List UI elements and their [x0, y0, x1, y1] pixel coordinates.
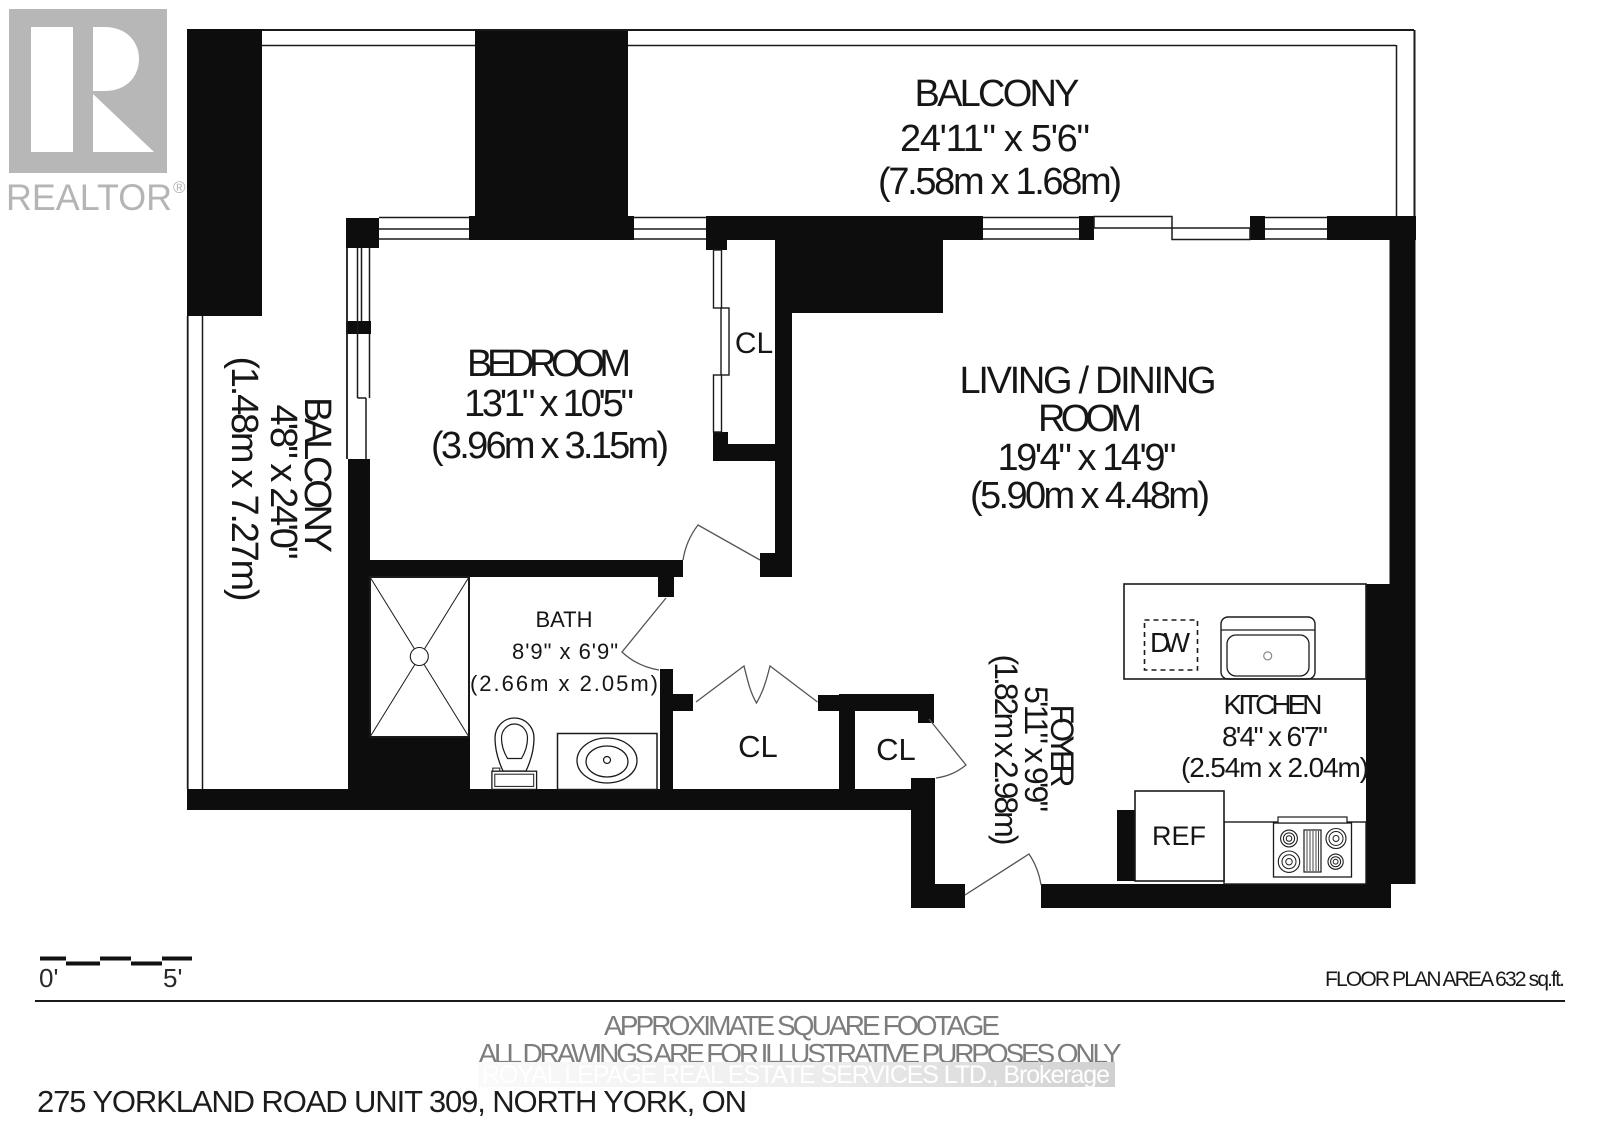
svg-text:BEDROOM: BEDROOM — [467, 343, 631, 385]
svg-text:(3.96m x 3.15m): (3.96m x 3.15m) — [431, 425, 669, 467]
svg-text:CL: CL — [738, 729, 778, 764]
svg-text:FLOOR PLAN AREA 632 sq.ft.: FLOOR PLAN AREA 632 sq.ft. — [1325, 968, 1565, 991]
svg-text:CL: CL — [735, 327, 773, 360]
svg-text:BALCONY: BALCONY — [915, 73, 1080, 115]
svg-text:0': 0' — [39, 963, 58, 993]
svg-text:LIVING / DINING: LIVING / DINING — [960, 360, 1217, 402]
svg-text:275 YORKLAND ROAD UNIT 309, NO: 275 YORKLAND ROAD UNIT 309, NORTH YORK, … — [37, 1084, 747, 1119]
svg-text:®: ® — [173, 178, 186, 197]
svg-text:APPROXIMATE SQUARE FOOTAGE: APPROXIMATE SQUARE FOOTAGE — [604, 1010, 1000, 1041]
svg-text:(2.66m x 2.05m): (2.66m x 2.05m) — [470, 671, 658, 696]
svg-text:4'8" x 24'0": 4'8" x 24'0" — [262, 405, 304, 560]
svg-text:5': 5' — [163, 963, 182, 993]
svg-text:(1.48m x 7.27m): (1.48m x 7.27m) — [223, 357, 265, 602]
svg-text:19'4" x 14'9": 19'4" x 14'9" — [998, 437, 1177, 479]
svg-text:BATH: BATH — [535, 607, 592, 632]
svg-text:CL: CL — [876, 732, 916, 767]
svg-text:REF: REF — [1152, 821, 1206, 851]
svg-text:13'1" x 10'5": 13'1" x 10'5" — [464, 383, 634, 425]
svg-text:REALTOR: REALTOR — [6, 177, 172, 218]
svg-text:8'4" x 6'7": 8'4" x 6'7" — [1222, 721, 1328, 752]
svg-text:(1.82m x 2.98m): (1.82m x 2.98m) — [988, 655, 1024, 846]
svg-text:8'9" x 6'9": 8'9" x 6'9" — [512, 639, 618, 664]
svg-text:(5.90m x 4.48m): (5.90m x 4.48m) — [970, 475, 1210, 517]
svg-text:(2.54m x 2.04m): (2.54m x 2.04m) — [1181, 752, 1369, 783]
svg-text:ROOM: ROOM — [1038, 398, 1142, 440]
svg-text:DW: DW — [1150, 627, 1191, 658]
svg-text:(7.58m x 1.68m): (7.58m x 1.68m) — [878, 161, 1122, 203]
svg-text:KITCHEN: KITCHEN — [1224, 689, 1323, 720]
svg-text:24'11" x 5'6": 24'11" x 5'6" — [900, 118, 1090, 160]
